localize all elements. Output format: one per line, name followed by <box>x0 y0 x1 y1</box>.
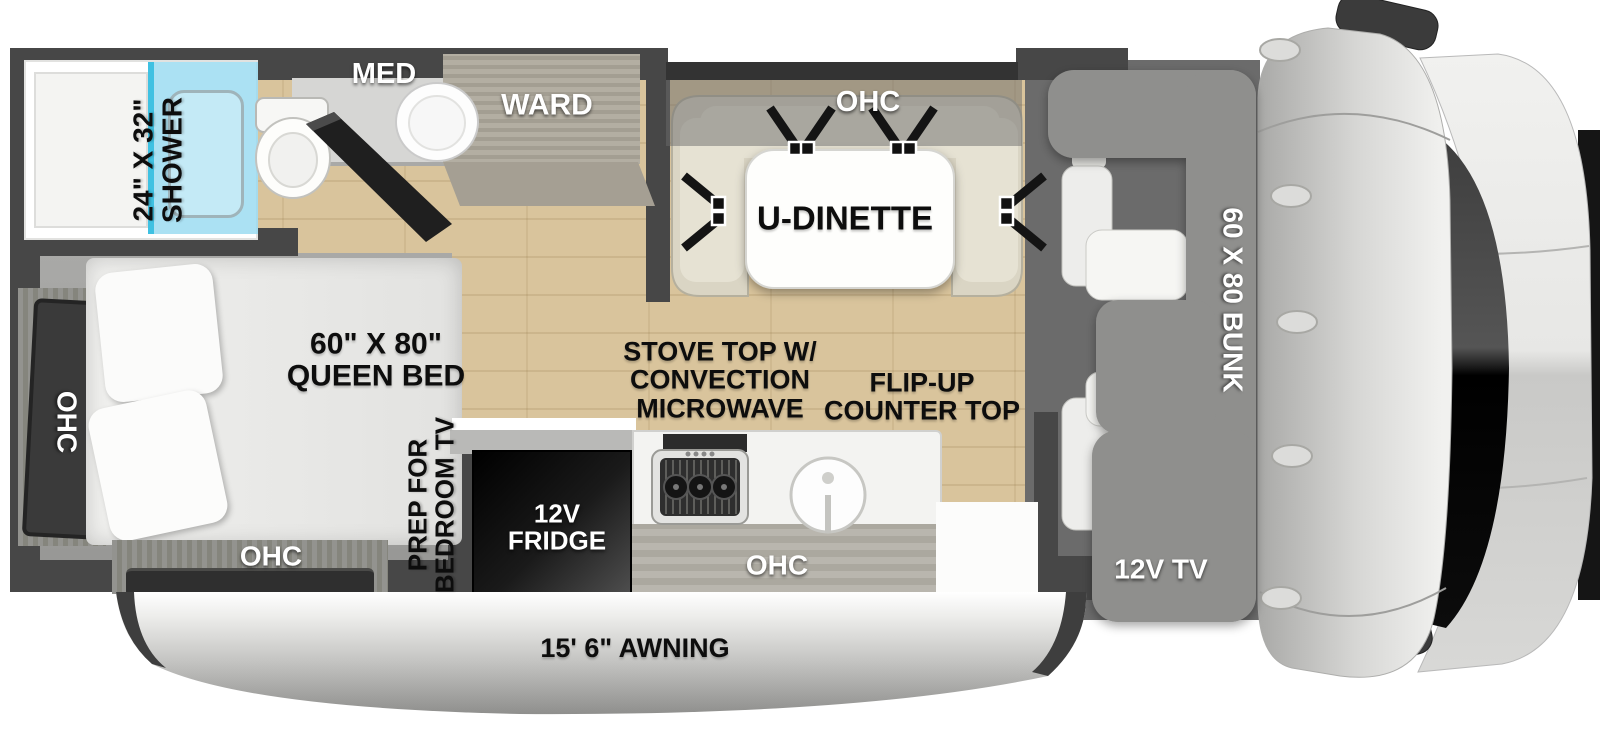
bedroom-tv-prep-label: PREP FOR BEDROOM TV <box>405 417 460 593</box>
dinette-window <box>668 48 1016 62</box>
label-line: STOVE TOP W/ <box>623 337 817 365</box>
ward-label: WARD <box>501 89 593 121</box>
fridge-label: 12V FRIDGE <box>508 501 606 556</box>
kitchen-sink-icon <box>791 458 865 533</box>
bunk-label: 60 X 80 BUNK <box>1218 207 1247 392</box>
dinette-ohc-edge <box>666 62 1018 80</box>
label-line: BEDROOM TV <box>432 417 459 593</box>
label-line: COUNTER TOP <box>824 397 1020 425</box>
label-line: QUEEN BED <box>287 360 465 392</box>
rv-floorplan: 24" X 32" SHOWER MED WARD OHC U-DINETTE … <box>0 0 1600 733</box>
label-line: 12V <box>508 501 606 528</box>
stove-label: STOVE TOP W/ CONVECTION MICROWAVE <box>623 337 817 422</box>
toilet-icon <box>256 98 330 198</box>
label-line: CONVECTION <box>623 366 817 394</box>
u-dinette-label: U-DINETTE <box>757 202 933 237</box>
cab-front <box>1258 0 1600 677</box>
cab-tv-label: 12V TV <box>1114 554 1207 583</box>
ward-front-face <box>443 162 655 206</box>
label-line: FLIP-UP <box>824 369 1020 397</box>
awning-label: 15' 6" AWNING <box>540 634 729 662</box>
kitchen-ohc-label: OHC <box>746 550 808 579</box>
label-line: MICROWAVE <box>623 394 817 422</box>
label-line: FRIDGE <box>508 528 606 555</box>
queen-bed-label: 60" X 80" QUEEN BED <box>287 329 465 392</box>
bath-sink-icon <box>396 83 478 161</box>
bed-rear-ohc-label: OHC <box>240 541 302 570</box>
med-label: MED <box>352 59 416 89</box>
stove-icon <box>652 450 748 524</box>
label-line: PREP FOR <box>405 417 432 593</box>
cab-roof <box>1258 28 1452 677</box>
bed-side-ohc-label: OHC <box>52 391 81 453</box>
shower-label: 24" X 32" SHOWER <box>129 97 188 223</box>
dinette-ohc-label: OHC <box>836 87 900 117</box>
label-line: 60" X 80" <box>287 329 465 361</box>
label-line: 24" X 32" <box>129 97 158 223</box>
flip-up-counter-label: FLIP-UP COUNTER TOP <box>824 369 1020 426</box>
label-line: SHOWER <box>158 97 187 223</box>
